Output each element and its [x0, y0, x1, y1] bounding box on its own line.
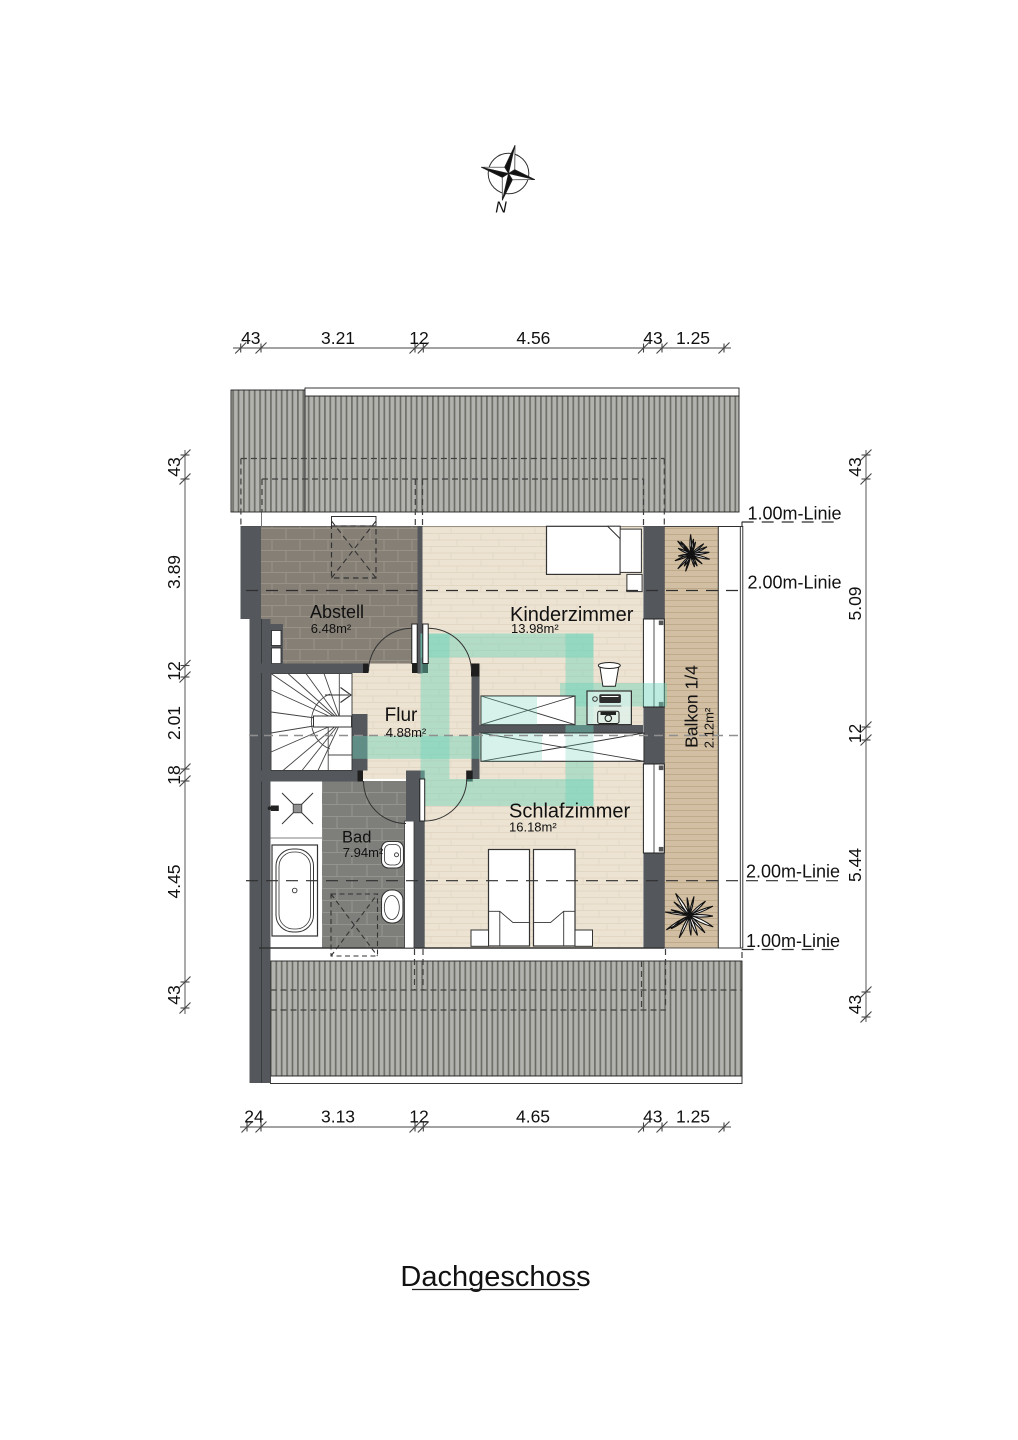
svg-text:2.00m-Linie: 2.00m-Linie — [748, 573, 842, 593]
svg-text:3.89: 3.89 — [164, 555, 184, 589]
svg-text:1.00m-Linie: 1.00m-Linie — [748, 504, 842, 524]
svg-text:Dachgeschoss: Dachgeschoss — [400, 1261, 590, 1293]
svg-text:1.00m-Linie: 1.00m-Linie — [746, 931, 840, 951]
svg-text:43: 43 — [845, 995, 865, 1014]
svg-text:43: 43 — [643, 328, 662, 348]
svg-text:1.25: 1.25 — [676, 1107, 710, 1127]
svg-text:4.45: 4.45 — [164, 864, 184, 898]
svg-text:13.98m²: 13.98m² — [511, 621, 559, 636]
svg-text:12: 12 — [845, 724, 865, 743]
svg-text:Balkon 1/4: Balkon 1/4 — [682, 665, 702, 748]
svg-text:N: N — [495, 200, 507, 217]
svg-text:12: 12 — [409, 328, 428, 348]
svg-text:18: 18 — [164, 765, 184, 784]
svg-text:5.44: 5.44 — [845, 848, 865, 882]
svg-text:3.13: 3.13 — [321, 1107, 355, 1127]
svg-text:2.01: 2.01 — [164, 706, 184, 740]
svg-text:43: 43 — [845, 457, 865, 476]
svg-text:Bad: Bad — [342, 829, 371, 847]
svg-text:16.18m²: 16.18m² — [509, 820, 557, 835]
svg-text:7.94m²: 7.94m² — [343, 845, 384, 860]
svg-text:2.00m-Linie: 2.00m-Linie — [746, 862, 840, 882]
svg-text:1.25: 1.25 — [676, 328, 710, 348]
svg-text:2.12m²: 2.12m² — [702, 707, 717, 748]
svg-text:24: 24 — [244, 1107, 264, 1127]
svg-text:43: 43 — [643, 1107, 662, 1127]
svg-text:4.56: 4.56 — [516, 328, 550, 348]
svg-text:12: 12 — [164, 661, 184, 680]
svg-text:4.88m²: 4.88m² — [386, 725, 427, 740]
svg-text:Abstell: Abstell — [310, 602, 364, 622]
svg-text:43: 43 — [164, 457, 184, 476]
svg-text:Flur: Flur — [385, 705, 418, 726]
svg-text:4.65: 4.65 — [516, 1107, 550, 1127]
svg-text:12: 12 — [409, 1107, 428, 1127]
svg-text:5.09: 5.09 — [845, 586, 865, 620]
svg-text:3.21: 3.21 — [321, 328, 355, 348]
svg-text:43: 43 — [164, 985, 184, 1004]
svg-text:6.48m²: 6.48m² — [311, 621, 352, 636]
svg-text:43: 43 — [241, 328, 260, 348]
